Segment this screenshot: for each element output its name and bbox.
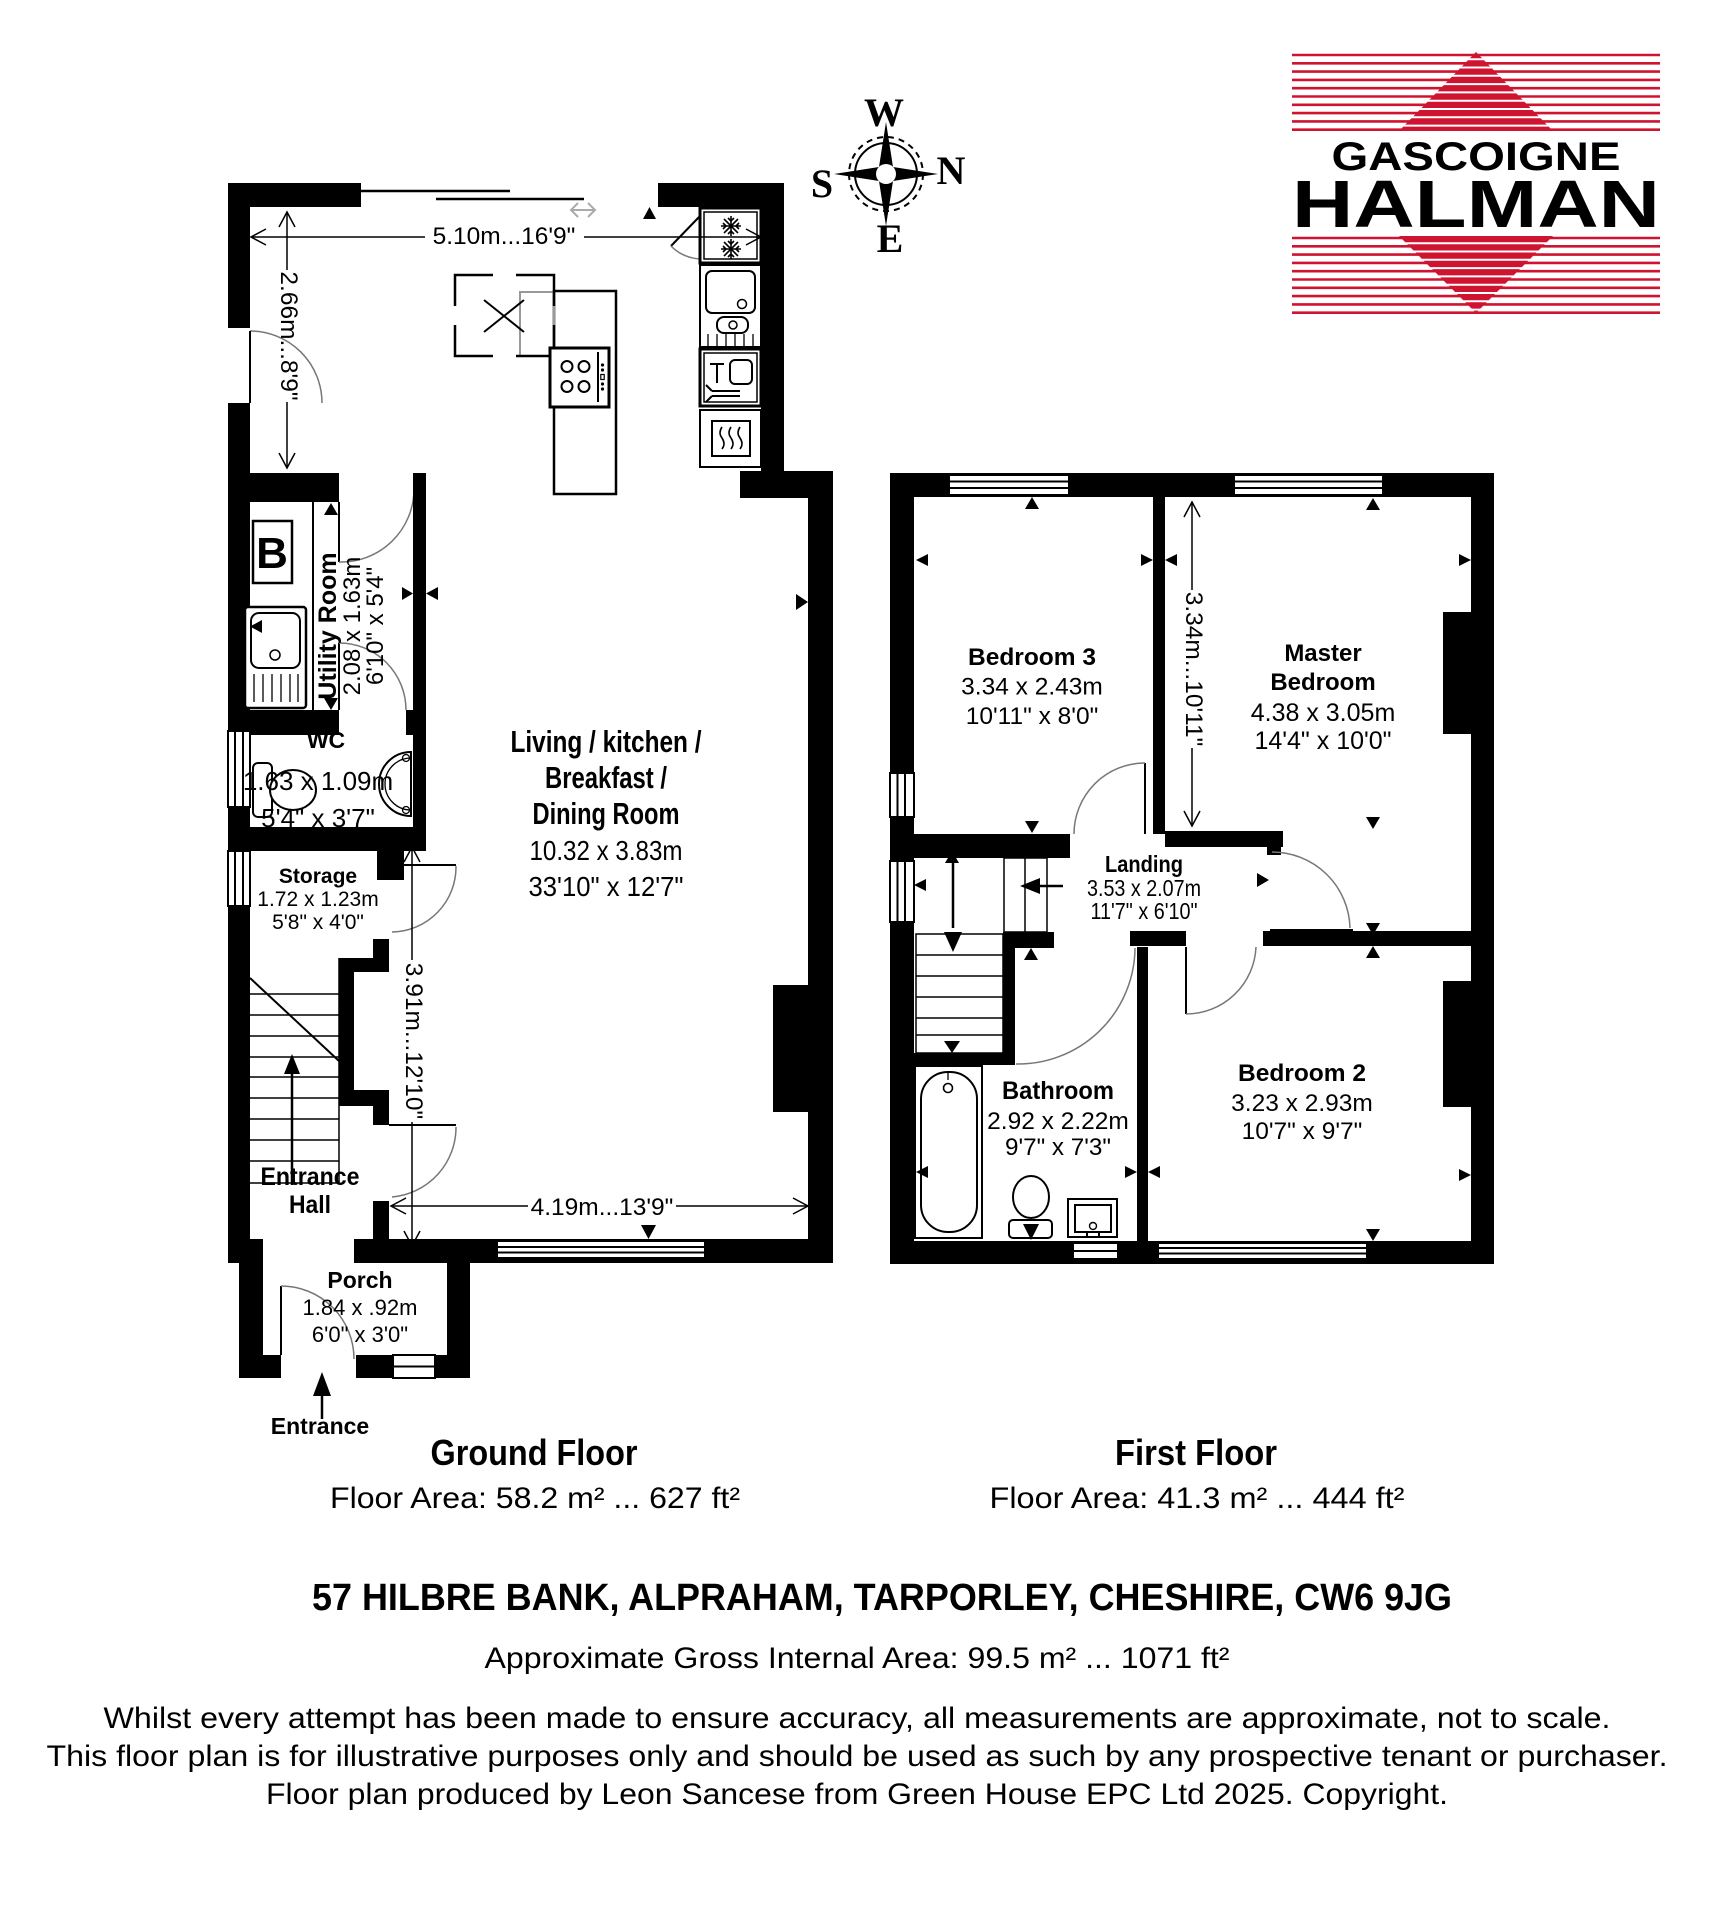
svg-text:4.19m...13'9": 4.19m...13'9" <box>531 1194 674 1221</box>
svg-text:First Floor: First Floor <box>1115 1432 1277 1473</box>
svg-text:Ground Floor: Ground Floor <box>431 1432 638 1473</box>
svg-text:Floor plan produced by Leon Sa: Floor plan produced by Leon Sancese from… <box>266 1778 1448 1811</box>
svg-text:W: W <box>864 90 904 135</box>
svg-text:Whilst every attempt has been: Whilst every attempt has been made to en… <box>104 1702 1611 1735</box>
svg-text:33'10" x 12'7": 33'10" x 12'7" <box>529 871 684 902</box>
svg-text:10'11" x 8'0": 10'11" x 8'0" <box>966 703 1099 730</box>
svg-text:N: N <box>937 148 966 193</box>
svg-text:Porch: Porch <box>327 1267 392 1293</box>
svg-text:2.66m...8'9": 2.66m...8'9" <box>275 271 302 400</box>
svg-text:E: E <box>877 216 904 261</box>
svg-text:Entrance: Entrance <box>271 1413 369 1439</box>
svg-text:1.72 x 1.23m: 1.72 x 1.23m <box>257 888 378 911</box>
svg-text:This floor plan is for illustr: This floor plan is for illustrative purp… <box>47 1740 1668 1773</box>
svg-text:57 HILBRE BANK, ALPRAHAM, TARP: 57 HILBRE BANK, ALPRAHAM, TARPORLEY, CHE… <box>312 1577 1452 1619</box>
svg-text:10'7" x 9'7": 10'7" x 9'7" <box>1242 1118 1363 1145</box>
svg-text:4.38 x 3.05m: 4.38 x 3.05m <box>1251 699 1396 727</box>
svg-text:6'10" x 5'4": 6'10" x 5'4" <box>362 567 389 685</box>
svg-text:3.34 x 2.43m: 3.34 x 2.43m <box>961 674 1103 701</box>
svg-text:Hall: Hall <box>289 1191 331 1219</box>
svg-text:Storage: Storage <box>279 865 357 888</box>
svg-text:Floor Area: 41.3 m² ... 444 ft: Floor Area: 41.3 m² ... 444 ft² <box>990 1482 1405 1515</box>
svg-text:Living / kitchen /: Living / kitchen / <box>511 724 702 759</box>
svg-text:11'7" x 6'10": 11'7" x 6'10" <box>1091 898 1198 924</box>
svg-text:1.63 x 1.09m: 1.63 x 1.09m <box>243 766 393 796</box>
svg-text:6'0" x 3'0": 6'0" x 3'0" <box>312 1322 408 1347</box>
svg-text:5'4" x 3'7": 5'4" x 3'7" <box>261 803 375 833</box>
svg-text:10.32 x 3.83m: 10.32 x 3.83m <box>530 835 683 866</box>
svg-text:Entrance: Entrance <box>261 1163 360 1191</box>
svg-text:3.23 x 2.93m: 3.23 x 2.93m <box>1231 1090 1373 1117</box>
svg-text:HALMAN: HALMAN <box>1292 167 1660 242</box>
svg-text:14'4" x 10'0": 14'4" x 10'0" <box>1254 727 1391 755</box>
svg-text:Master: Master <box>1284 640 1361 667</box>
svg-text:5'8" x 4'0": 5'8" x 4'0" <box>272 911 364 934</box>
svg-text:WC: WC <box>307 727 345 753</box>
svg-text:Approximate Gross Internal Are: Approximate Gross Internal Area: 99.5 m²… <box>485 1642 1230 1675</box>
svg-text:Floor Area: 58.2 m² ... 627 ft: Floor Area: 58.2 m² ... 627 ft² <box>330 1482 740 1515</box>
svg-text:Bedroom: Bedroom <box>1270 669 1375 696</box>
svg-text:3.34m...10'11": 3.34m...10'11" <box>1180 592 1207 747</box>
svg-text:5.10m...16'9": 5.10m...16'9" <box>433 223 576 250</box>
svg-text:Utility Room: Utility Room <box>314 552 342 699</box>
svg-text:Landing: Landing <box>1105 851 1183 877</box>
svg-text:Bedroom 2: Bedroom 2 <box>1238 1060 1366 1087</box>
svg-text:Dining Room: Dining Room <box>533 796 680 831</box>
svg-text:Bathroom: Bathroom <box>1002 1077 1114 1105</box>
svg-text:2.92 x 2.22m: 2.92 x 2.22m <box>987 1108 1129 1135</box>
svg-text:9'7" x 7'3": 9'7" x 7'3" <box>1005 1134 1111 1161</box>
svg-text:S: S <box>811 161 833 206</box>
svg-text:3.91m...12'10": 3.91m...12'10" <box>400 963 427 1119</box>
svg-text:Bedroom 3: Bedroom 3 <box>968 644 1096 671</box>
svg-text:1.84 x .92m: 1.84 x .92m <box>303 1295 418 1320</box>
svg-text:B: B <box>256 529 288 578</box>
svg-text:Breakfast /: Breakfast / <box>545 760 667 795</box>
